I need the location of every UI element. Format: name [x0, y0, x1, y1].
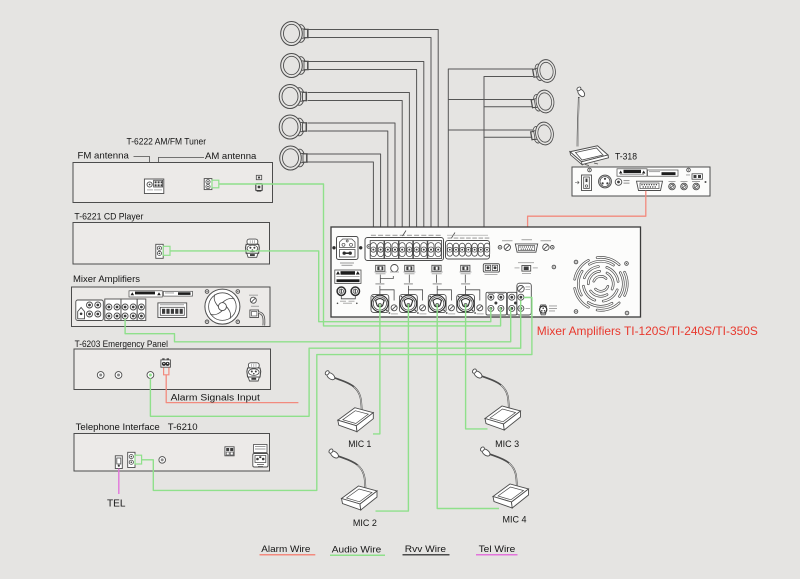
svg-text:TEL: TEL	[107, 497, 126, 509]
svg-text:MIC 1: MIC 1	[348, 438, 371, 449]
svg-text:Tel Wire: Tel Wire	[479, 543, 516, 554]
svg-text:T-6203 Emergency Panel: T-6203 Emergency Panel	[75, 338, 168, 349]
svg-text:T-6222 AM/FM Tuner: T-6222 AM/FM Tuner	[127, 136, 207, 147]
svg-text:T-6221 CD Player: T-6221 CD Player	[74, 210, 143, 221]
svg-text:AM antenna: AM antenna	[205, 150, 257, 161]
svg-text:MIC 4: MIC 4	[503, 514, 527, 525]
svg-text:MIC 3: MIC 3	[495, 438, 519, 449]
svg-text:Mixer Amplifiers: Mixer Amplifiers	[73, 273, 140, 284]
svg-text:Audio Wire: Audio Wire	[332, 543, 381, 554]
svg-text:Telephone Interface T-6210: Telephone Interface T-6210	[76, 421, 198, 432]
svg-text:Rvv Wire: Rvv Wire	[405, 543, 446, 554]
svg-text:MIC 2: MIC 2	[353, 517, 377, 528]
svg-text:FM antenna: FM antenna	[78, 149, 130, 160]
svg-text:Alarm Wire: Alarm Wire	[261, 543, 310, 554]
svg-text:Mixer Amplifiers TI-120S/TI-24: Mixer Amplifiers TI-120S/TI-240S/TI-350S	[537, 324, 758, 338]
svg-text:Alarm Signals Input: Alarm Signals Input	[171, 393, 261, 404]
svg-text:T-318: T-318	[615, 150, 637, 161]
